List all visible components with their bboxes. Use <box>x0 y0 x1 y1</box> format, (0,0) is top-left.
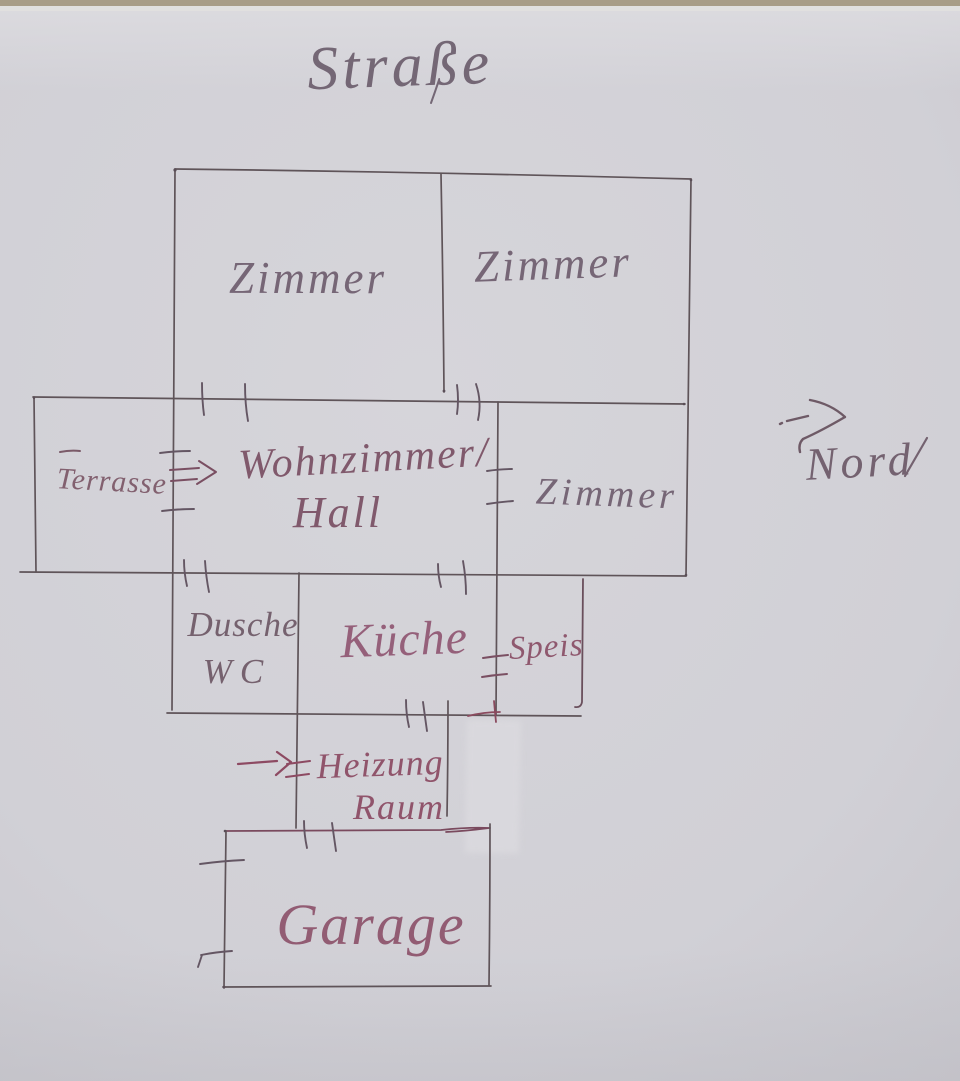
svg-text:Dusche: Dusche <box>187 605 299 644</box>
svg-text:Heizung: Heizung <box>315 742 444 786</box>
svg-text:Garage: Garage <box>276 892 465 957</box>
svg-text:Speis: Speis <box>508 627 584 667</box>
svg-text:Straße: Straße <box>306 29 494 103</box>
svg-text:Hall: Hall <box>292 488 383 537</box>
svg-text:Zimmer: Zimmer <box>473 236 633 291</box>
svg-text:Küche: Küche <box>338 611 468 668</box>
svg-text:WC: WC <box>203 652 272 691</box>
svg-text:Zimmer: Zimmer <box>229 253 387 303</box>
svg-text:Raum: Raum <box>352 787 445 827</box>
svg-text:Nord: Nord <box>803 433 915 490</box>
svg-text:Zimmer: Zimmer <box>535 471 679 518</box>
svg-text:Terrasse: Terrasse <box>56 462 168 501</box>
